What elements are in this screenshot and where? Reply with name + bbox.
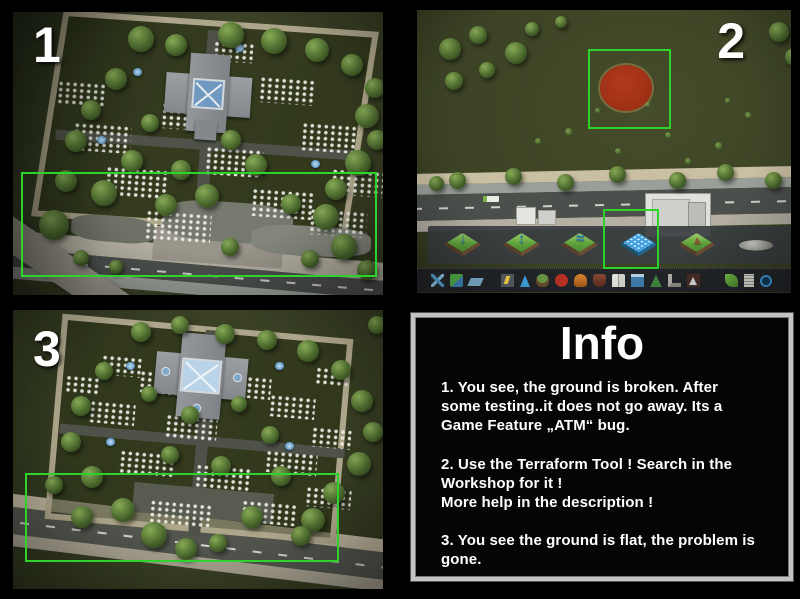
tree	[355, 104, 379, 128]
electricity-icon[interactable]	[501, 274, 514, 287]
tree	[218, 22, 244, 48]
highlight-brush-area	[588, 49, 671, 129]
info-step-2: 2. Use the Terraform Tool ! Search in th…	[441, 455, 759, 513]
bush	[715, 142, 722, 149]
soften-terrain-icon[interactable]: ≈	[557, 228, 603, 262]
gravestone-rows	[310, 426, 352, 449]
tree	[297, 340, 319, 362]
tree	[557, 174, 574, 191]
tree	[341, 54, 363, 76]
fountain	[126, 362, 135, 370]
tree	[71, 396, 91, 416]
tree	[105, 68, 127, 90]
bush	[725, 98, 730, 103]
tree	[128, 26, 154, 52]
tree	[161, 446, 179, 464]
shift-terrain-icon[interactable]: ↓	[440, 228, 486, 262]
tree	[171, 316, 189, 334]
tree	[765, 172, 782, 189]
bush	[685, 158, 691, 164]
tree	[141, 114, 159, 132]
gravestone-rows	[268, 394, 316, 420]
tree	[81, 100, 101, 120]
tree	[439, 38, 461, 60]
tree	[717, 164, 734, 181]
parks-icon[interactable]	[650, 275, 662, 287]
tree	[331, 360, 351, 380]
gravestone-rows	[258, 76, 315, 106]
tree	[221, 130, 241, 150]
transport-icon[interactable]	[631, 274, 644, 287]
tree	[505, 42, 527, 64]
healthcare-icon[interactable]	[555, 274, 568, 287]
police-icon[interactable]	[593, 274, 606, 287]
fountain	[106, 438, 115, 446]
toolbar-group-build	[431, 273, 482, 287]
bush	[665, 132, 671, 138]
tree	[141, 386, 157, 402]
rocks-brush-icon[interactable]	[733, 228, 779, 262]
toolbar-group-misc	[725, 273, 772, 287]
tree	[95, 362, 113, 380]
gravestone-rows	[300, 122, 360, 154]
fountain	[285, 442, 294, 450]
car	[483, 196, 499, 202]
panel-number: 3	[33, 324, 61, 374]
zoning-icon[interactable]	[450, 274, 463, 287]
info-step-1: 1. You see, the ground is broken. After …	[441, 378, 759, 436]
game-main-toolbar	[417, 268, 791, 292]
tree	[445, 72, 463, 90]
tree	[525, 22, 539, 36]
districts-icon[interactable]	[467, 278, 484, 286]
kiosk-building	[538, 210, 556, 225]
tree	[215, 324, 235, 344]
panel-number: 1	[33, 20, 61, 70]
slope-terrain-icon[interactable]: ▲	[674, 228, 720, 262]
tree	[609, 166, 626, 183]
tree	[347, 452, 371, 476]
fountain	[133, 68, 142, 76]
gravestone-rows	[88, 400, 136, 426]
highlight-flat-ground	[25, 473, 339, 562]
water-icon[interactable]	[520, 275, 530, 287]
fountain	[275, 362, 284, 370]
roads-icon[interactable]	[431, 274, 444, 287]
tree	[181, 406, 199, 424]
gravestone-rows	[64, 375, 99, 396]
info-panel: Info 1. You see, the ground is broken. A…	[411, 313, 793, 581]
resources-icon[interactable]	[725, 274, 738, 287]
highlight-selected-tool	[603, 209, 659, 269]
tree	[351, 390, 373, 412]
screenshot-panel-1: 1	[13, 12, 383, 295]
info-title: Info	[415, 320, 789, 366]
level-terrain-icon[interactable]: ↕	[499, 228, 545, 262]
tree	[65, 130, 87, 152]
bush	[745, 112, 751, 118]
fire-icon[interactable]	[574, 274, 587, 287]
tree	[769, 22, 789, 42]
guide-collage: 1 ↓↕≈▲ 2	[0, 0, 800, 599]
tree	[121, 150, 143, 172]
garbage-icon[interactable]	[536, 274, 549, 287]
fountain	[97, 136, 106, 144]
policies-icon[interactable]	[744, 274, 754, 287]
screenshot-panel-2: ↓↕≈▲ 2	[417, 10, 791, 293]
bush	[565, 128, 572, 135]
tree	[165, 34, 187, 56]
tree	[131, 322, 151, 342]
bush	[535, 138, 541, 144]
tree	[555, 16, 567, 28]
bush	[615, 148, 621, 154]
tree	[363, 422, 383, 442]
tree	[505, 168, 522, 185]
tree	[257, 330, 277, 350]
monuments-icon[interactable]	[687, 274, 700, 287]
crematorium-building	[162, 51, 254, 143]
tree	[367, 130, 383, 150]
toolbar-group-services	[501, 273, 700, 287]
tree	[479, 62, 495, 78]
education-icon[interactable]	[612, 274, 625, 287]
tree	[469, 26, 487, 44]
screenshot-panel-3: 3	[13, 310, 383, 589]
tree	[368, 316, 383, 334]
tree	[61, 432, 81, 452]
tree	[669, 172, 686, 189]
tree	[429, 176, 444, 191]
kiosk-building	[516, 207, 536, 225]
fountain	[311, 160, 320, 168]
tree	[261, 426, 279, 444]
terraform-mod-icon[interactable]	[760, 275, 772, 287]
highlight-broken-ground	[21, 172, 377, 277]
tree	[261, 28, 287, 54]
tree	[231, 396, 247, 412]
tree	[365, 78, 383, 98]
tree	[305, 38, 329, 62]
unique-buildings-icon[interactable]	[668, 274, 681, 287]
tree	[449, 172, 466, 189]
info-step-3: 3. You see the ground is flat, the probl…	[441, 531, 759, 569]
panel-number: 2	[717, 16, 745, 66]
tree	[785, 48, 791, 66]
